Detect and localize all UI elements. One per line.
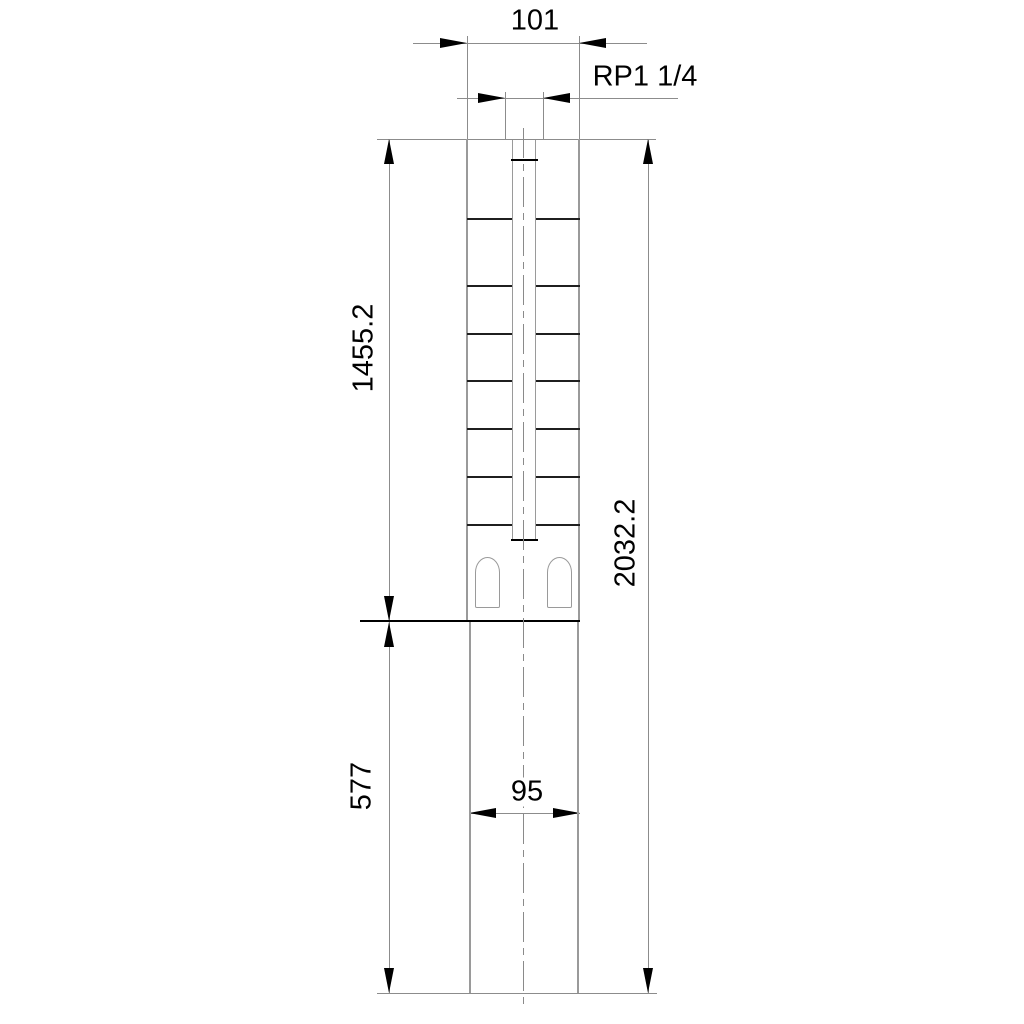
motor-right-wall bbox=[577, 622, 579, 993]
stage-line bbox=[536, 285, 580, 287]
extension-line-bottom bbox=[377, 993, 657, 994]
riser-pipe-right-wall bbox=[535, 140, 536, 540]
dim-label-motor-width: 95 bbox=[508, 778, 546, 807]
stage-line bbox=[536, 380, 580, 382]
stage-line bbox=[467, 476, 512, 478]
dim-label-total-length: 2032.2 bbox=[612, 499, 641, 588]
dim-label-pump-length: 1455.2 bbox=[350, 304, 379, 393]
stage-line bbox=[536, 428, 580, 430]
dim-label-thread: RP1 1/4 bbox=[593, 63, 698, 92]
stage-line bbox=[467, 285, 512, 287]
dimension-line-pump-length bbox=[389, 139, 390, 621]
suction-slot-right bbox=[547, 557, 572, 608]
vertical-centerline bbox=[523, 128, 524, 1005]
extension-line-casing-left bbox=[467, 36, 468, 139]
dim-arrow-total-length-bottom bbox=[643, 968, 653, 993]
extension-line-thread-left bbox=[505, 92, 506, 139]
riser-pipe-bottom-cap bbox=[511, 539, 538, 541]
dim-arrow-motor-length-top bbox=[384, 622, 394, 647]
dim-arrow-motor-length-bottom bbox=[384, 968, 394, 993]
suction-slot-left bbox=[475, 557, 500, 608]
stage-line bbox=[536, 333, 580, 335]
drawing-canvas: 101 RP1 1/4 1455.2 577 2032.2 95 bbox=[0, 0, 1024, 1024]
stage-line bbox=[536, 218, 580, 220]
dim-arrow-motor-width-left bbox=[469, 808, 496, 818]
stage-line bbox=[467, 524, 512, 526]
dim-arrow-pump-length-bottom bbox=[384, 596, 394, 621]
riser-pipe-left-wall bbox=[512, 140, 513, 540]
stage-line bbox=[467, 218, 512, 220]
dimension-line-total-length bbox=[648, 139, 649, 993]
dimension-line-motor-length bbox=[389, 621, 390, 993]
extension-line-casing-right bbox=[579, 36, 580, 139]
dim-arrow-pump-length-top bbox=[384, 139, 394, 164]
extension-line-top bbox=[377, 139, 656, 140]
stage-line bbox=[467, 380, 512, 382]
stage-line bbox=[467, 333, 512, 335]
dim-arrow-motor-width-right bbox=[553, 808, 580, 818]
dim-arrow-thread-right bbox=[543, 93, 570, 103]
stage-line bbox=[467, 428, 512, 430]
dim-arrow-total-length-top bbox=[643, 139, 653, 164]
motor-left-wall bbox=[469, 622, 471, 993]
dim-label-motor-length: 577 bbox=[348, 762, 377, 810]
dim-arrow-width-top-right bbox=[579, 38, 606, 48]
dim-arrow-width-top-left bbox=[440, 38, 467, 48]
stage-line bbox=[536, 524, 580, 526]
stage-line bbox=[536, 476, 580, 478]
riser-pipe-top-cap bbox=[511, 159, 538, 161]
dim-arrow-thread-left bbox=[478, 93, 505, 103]
dim-label-width-top: 101 bbox=[511, 7, 559, 36]
